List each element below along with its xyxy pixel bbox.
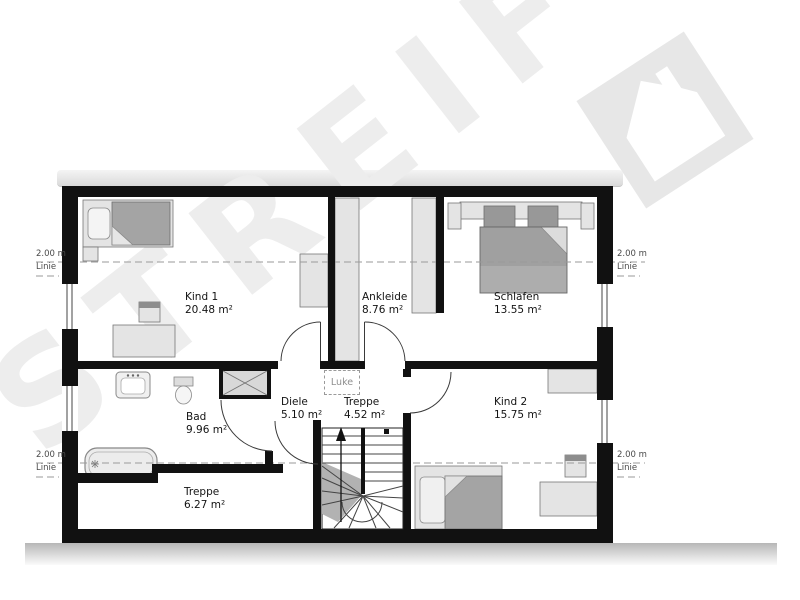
wall-kind1-bad bbox=[78, 361, 278, 369]
door-stair bbox=[275, 421, 318, 464]
room-label-schlafen: Schlafen 13.55 m² bbox=[494, 291, 542, 317]
door-kind2 bbox=[410, 372, 451, 413]
room-label-bad: Bad 9.96 m² bbox=[186, 411, 227, 437]
room-label-diele: Diele 5.10 m² bbox=[281, 396, 322, 422]
nightstand-kind1 bbox=[83, 247, 98, 261]
room-label-treppe-lower: Treppe 6.27 m² bbox=[184, 486, 225, 512]
wall-exterior-top bbox=[62, 186, 613, 197]
desk-kind2 bbox=[540, 482, 597, 516]
shelf-kind2 bbox=[548, 369, 597, 393]
shower bbox=[219, 367, 271, 399]
wall-stair-left bbox=[313, 420, 321, 529]
room-label-ankleide: Ankleide 8.76 m² bbox=[362, 291, 407, 317]
chair-kind1 bbox=[139, 302, 160, 322]
wall-bad-treppe-upper bbox=[152, 464, 283, 473]
attic-hatch-luke: Luke bbox=[324, 370, 360, 395]
wall-stair-right bbox=[403, 413, 411, 529]
wall-ankleide-schlafen bbox=[436, 197, 444, 313]
room-area: 13.55 m² bbox=[494, 304, 542, 317]
window-left-upper bbox=[62, 284, 78, 329]
wardrobe-ankleide-right bbox=[412, 198, 436, 313]
room-name: Treppe bbox=[184, 486, 225, 499]
height-value: 2.00 m bbox=[36, 449, 66, 462]
bed-kind2 bbox=[415, 466, 502, 529]
height-value: 2.00 m bbox=[617, 449, 647, 462]
room-name: Schlafen bbox=[494, 291, 542, 304]
room-area: 5.10 m² bbox=[281, 409, 322, 422]
height-name: Linie bbox=[617, 261, 647, 274]
room-area: 4.52 m² bbox=[344, 409, 385, 422]
room-area: 8.76 m² bbox=[362, 304, 407, 317]
window-right-upper bbox=[597, 284, 613, 327]
height-marker-top-left: 2.00 m Linie bbox=[36, 248, 66, 274]
room-label-kind1: Kind 1 20.48 m² bbox=[185, 291, 233, 317]
stair-newel-dot bbox=[384, 429, 389, 434]
height-value: 2.00 m bbox=[617, 248, 647, 261]
double-bed-schlafen bbox=[448, 202, 594, 293]
wall-above-luke bbox=[320, 361, 365, 369]
room-label-kind2: Kind 2 15.75 m² bbox=[494, 396, 542, 422]
height-marker-bottom-right: 2.00 m Linie bbox=[617, 449, 647, 475]
chair-kind2 bbox=[565, 455, 586, 477]
wall-bad-treppe-lower bbox=[78, 473, 158, 483]
height-name: Linie bbox=[617, 462, 647, 475]
wall-diele-pillar bbox=[265, 451, 273, 466]
luke-label: Luke bbox=[331, 377, 353, 388]
room-name: Kind 1 bbox=[185, 291, 233, 304]
staircase bbox=[322, 427, 403, 529]
room-name: Bad bbox=[186, 411, 227, 424]
room-area: 6.27 m² bbox=[184, 499, 225, 512]
wall-kind1-ankleide bbox=[328, 197, 335, 369]
wall-schlafen-kind2 bbox=[405, 361, 597, 369]
height-name: Linie bbox=[36, 261, 66, 274]
wardrobe-ankleide-left bbox=[335, 198, 359, 361]
wall-exterior-right bbox=[597, 186, 613, 543]
window-left-lower bbox=[62, 386, 78, 431]
door-kind1 bbox=[281, 322, 321, 361]
room-area: 9.96 m² bbox=[186, 424, 227, 437]
wall-stair-right-pillar bbox=[403, 369, 411, 377]
bed-kind1 bbox=[83, 200, 173, 247]
room-name: Diele bbox=[281, 396, 322, 409]
wall-exterior-left bbox=[62, 186, 78, 543]
door-bad bbox=[221, 400, 272, 451]
door-ankleide bbox=[365, 322, 406, 361]
room-name: Treppe bbox=[344, 396, 385, 409]
room-name: Ankleide bbox=[362, 291, 407, 304]
room-label-treppe-upper: Treppe 4.52 m² bbox=[344, 396, 385, 422]
wall-exterior-bottom bbox=[62, 529, 613, 543]
washbasin bbox=[116, 372, 150, 398]
window-right-lower bbox=[597, 400, 613, 443]
room-area: 20.48 m² bbox=[185, 304, 233, 317]
height-name: Linie bbox=[36, 462, 66, 475]
toilet bbox=[174, 377, 193, 404]
room-area: 15.75 m² bbox=[494, 409, 542, 422]
height-marker-top-right: 2.00 m Linie bbox=[617, 248, 647, 274]
height-value: 2.00 m bbox=[36, 248, 66, 261]
height-marker-bottom-left: 2.00 m Linie bbox=[36, 449, 66, 475]
desk-kind1 bbox=[113, 325, 175, 357]
room-name: Kind 2 bbox=[494, 396, 542, 409]
floorplan-canvas: STREIF bbox=[0, 0, 800, 600]
